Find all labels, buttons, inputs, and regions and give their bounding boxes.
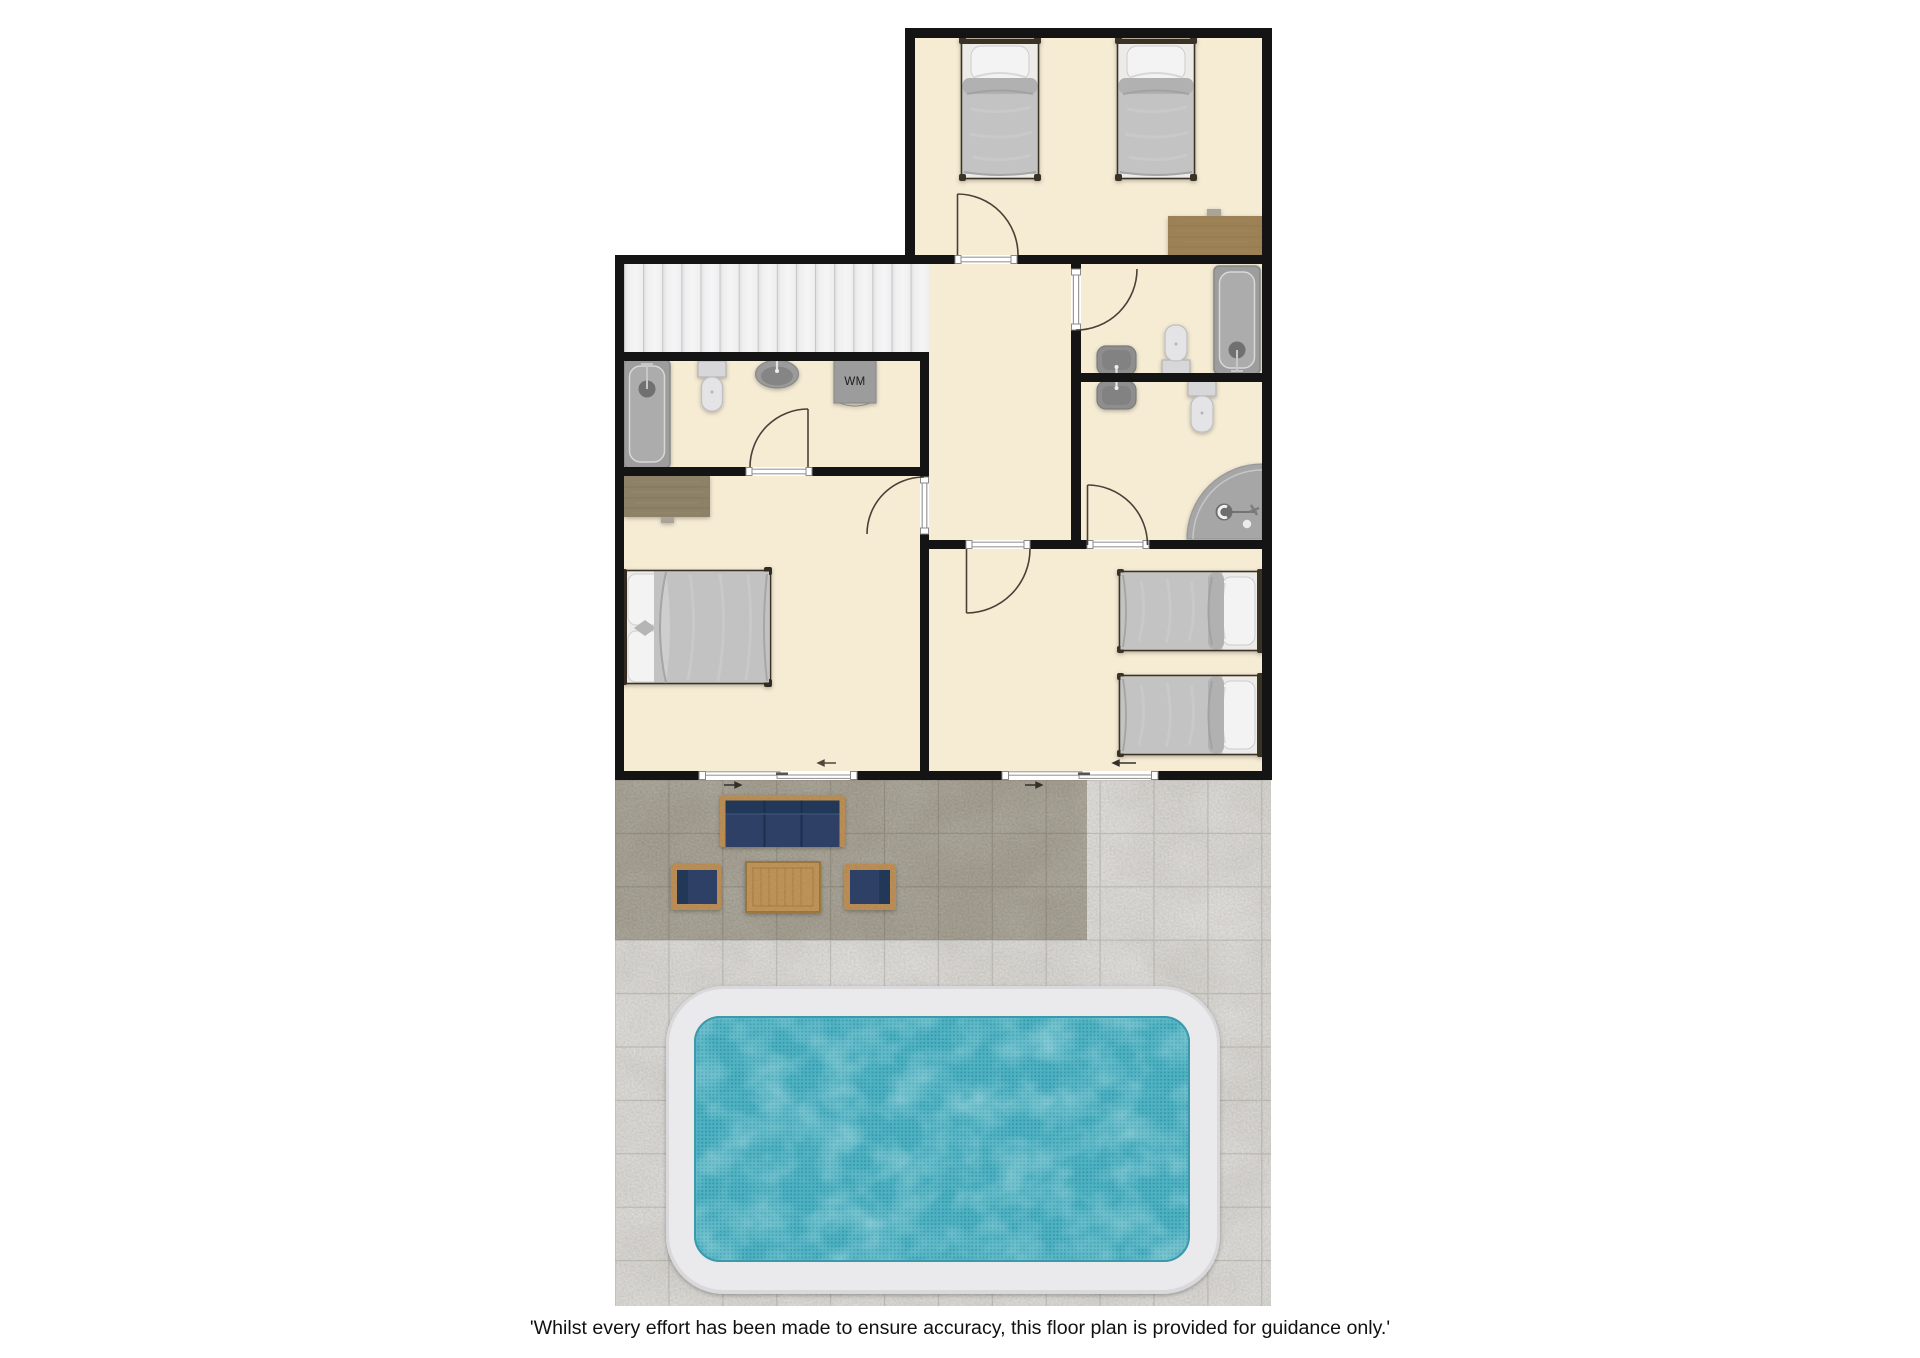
svg-text:WM: WM <box>844 376 865 388</box>
svg-text:'Whilst every effort has been: 'Whilst every effort has been made to en… <box>530 1317 1390 1339</box>
